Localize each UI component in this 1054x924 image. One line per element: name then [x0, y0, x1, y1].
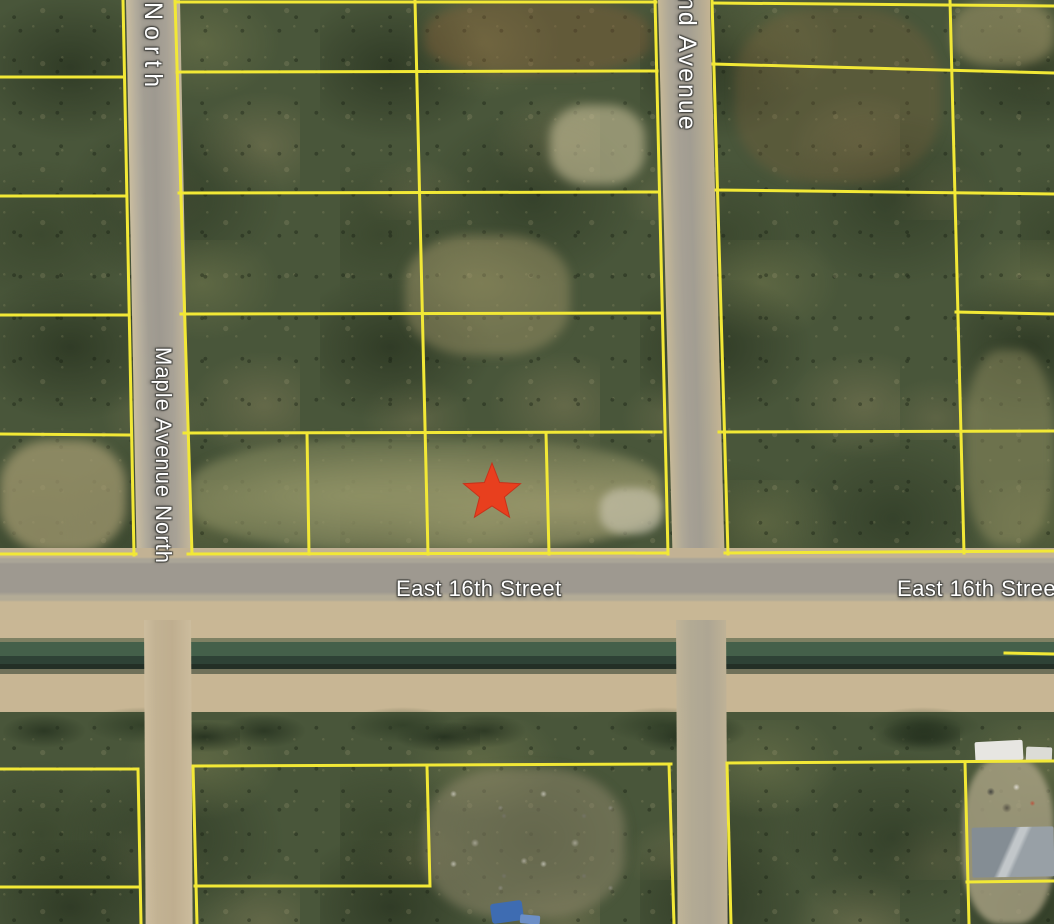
road-label-north-partial: North — [138, 2, 167, 93]
satellite-map-canvas[interactable]: North Maple Avenue North nd Avenue East … — [0, 0, 1054, 924]
road-label-east-16th-street-right: East 16th Stree — [897, 576, 1054, 602]
road-label-maple-avenue-north: Maple Avenue North — [150, 347, 176, 564]
road-label-avenue-partial: nd Avenue — [672, 0, 701, 132]
road-label-east-16th-street: East 16th Street — [396, 576, 562, 602]
